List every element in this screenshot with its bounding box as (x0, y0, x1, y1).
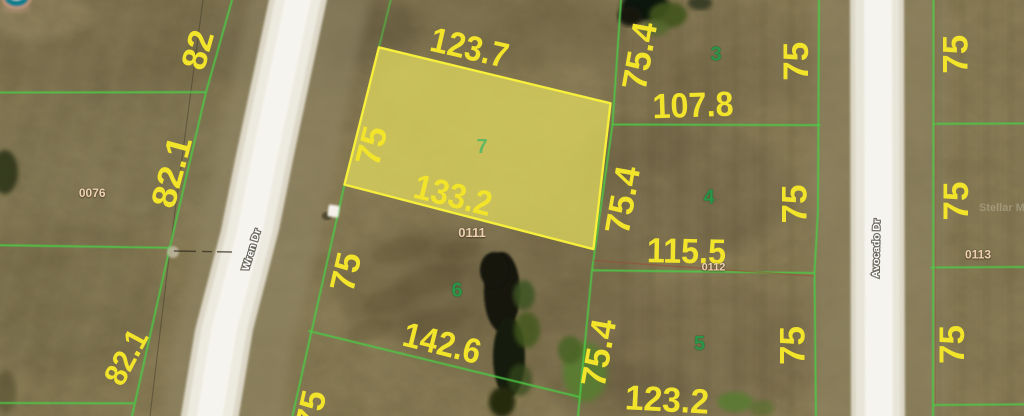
svg-text:0113: 0113 (965, 248, 991, 262)
svg-text:5: 5 (694, 333, 705, 355)
svg-text:75: 75 (937, 182, 976, 221)
svg-text:7: 7 (476, 136, 487, 158)
svg-text:75: 75 (777, 42, 816, 81)
svg-text:107.8: 107.8 (652, 85, 734, 127)
svg-text:0076: 0076 (79, 186, 106, 200)
svg-text:75: 75 (774, 326, 813, 365)
svg-text:4: 4 (703, 187, 715, 209)
svg-text:3: 3 (710, 44, 721, 66)
svg-text:123.2: 123.2 (624, 378, 710, 416)
svg-text:Stellar MLS: Stellar MLS (979, 202, 1024, 214)
svg-text:0112: 0112 (702, 262, 726, 274)
svg-text:75: 75 (937, 35, 976, 74)
svg-text:75: 75 (933, 325, 972, 364)
svg-text:Avocado Dr: Avocado Dr (871, 219, 883, 278)
svg-text:75: 75 (776, 185, 815, 224)
svg-text:6: 6 (451, 280, 462, 302)
svg-text:0111: 0111 (458, 225, 486, 240)
